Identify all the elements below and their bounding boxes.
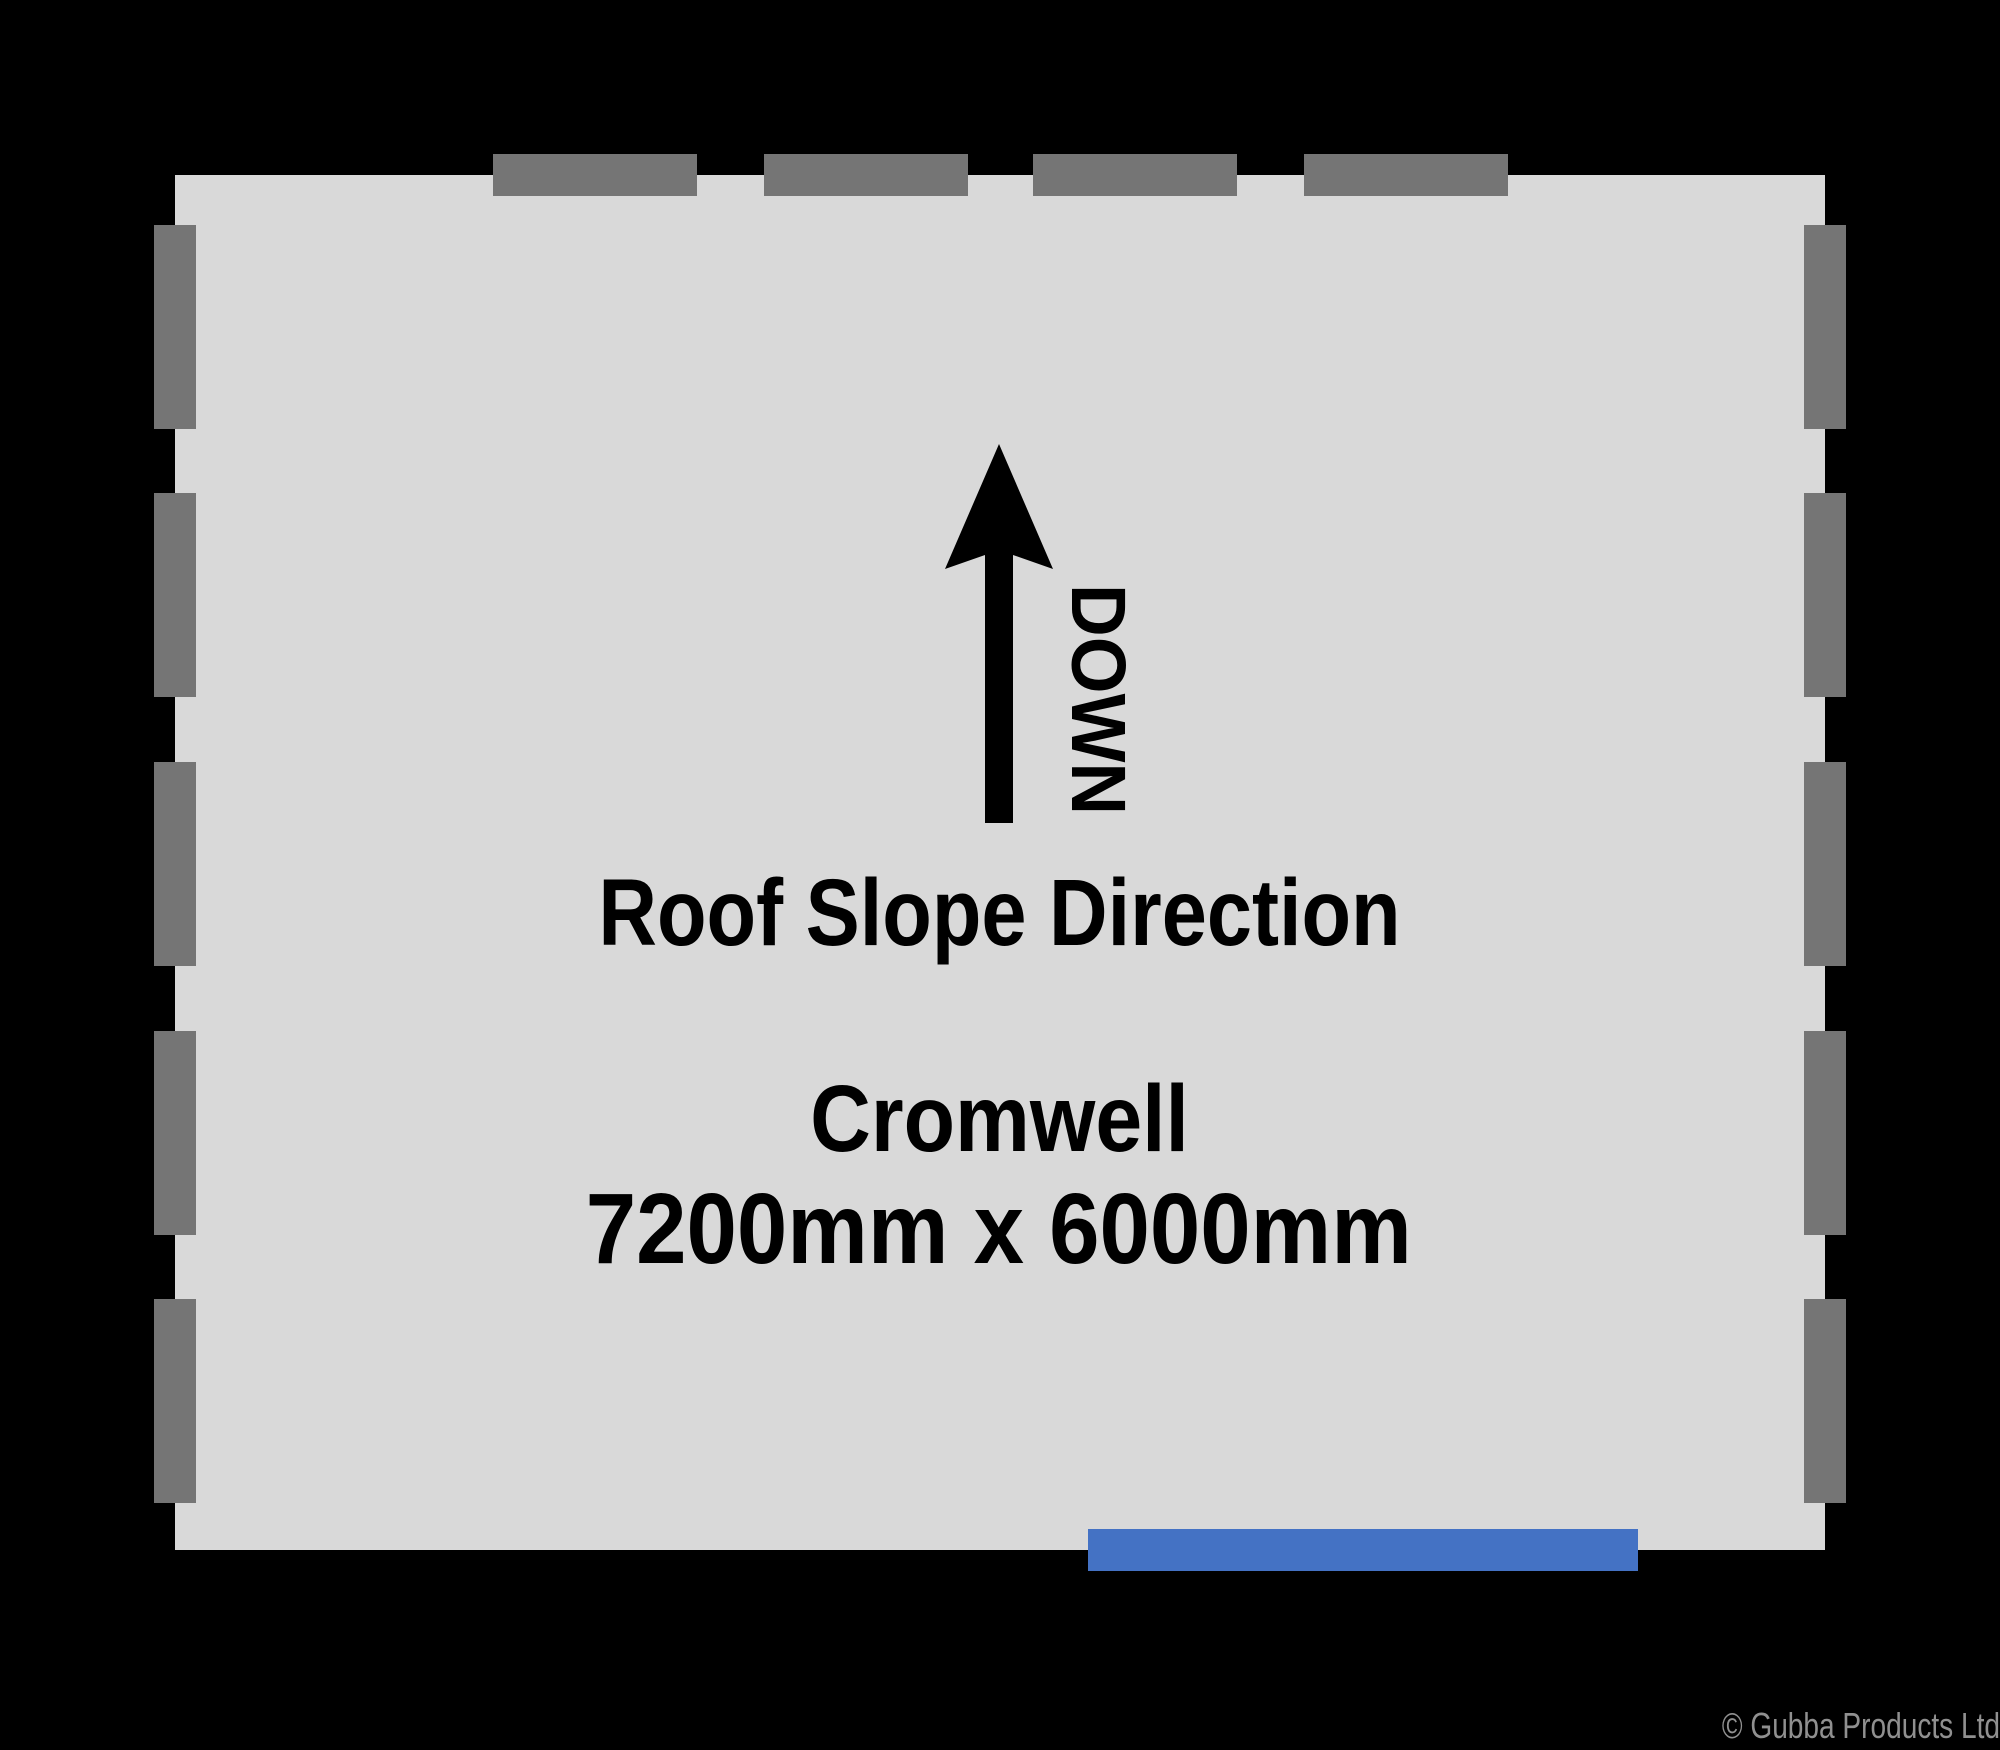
svg-text:7200mm x 6000mm: 7200mm x 6000mm <box>586 1174 1412 1285</box>
svg-text:© Gubba Products Ltd: © Gubba Products Ltd <box>1722 1706 2000 1746</box>
svg-text:Cromwell: Cromwell <box>810 1066 1189 1172</box>
svg-text:Roof Slope Direction: Roof Slope Direction <box>598 859 1400 965</box>
svg-text:DOWN: DOWN <box>1056 584 1142 815</box>
